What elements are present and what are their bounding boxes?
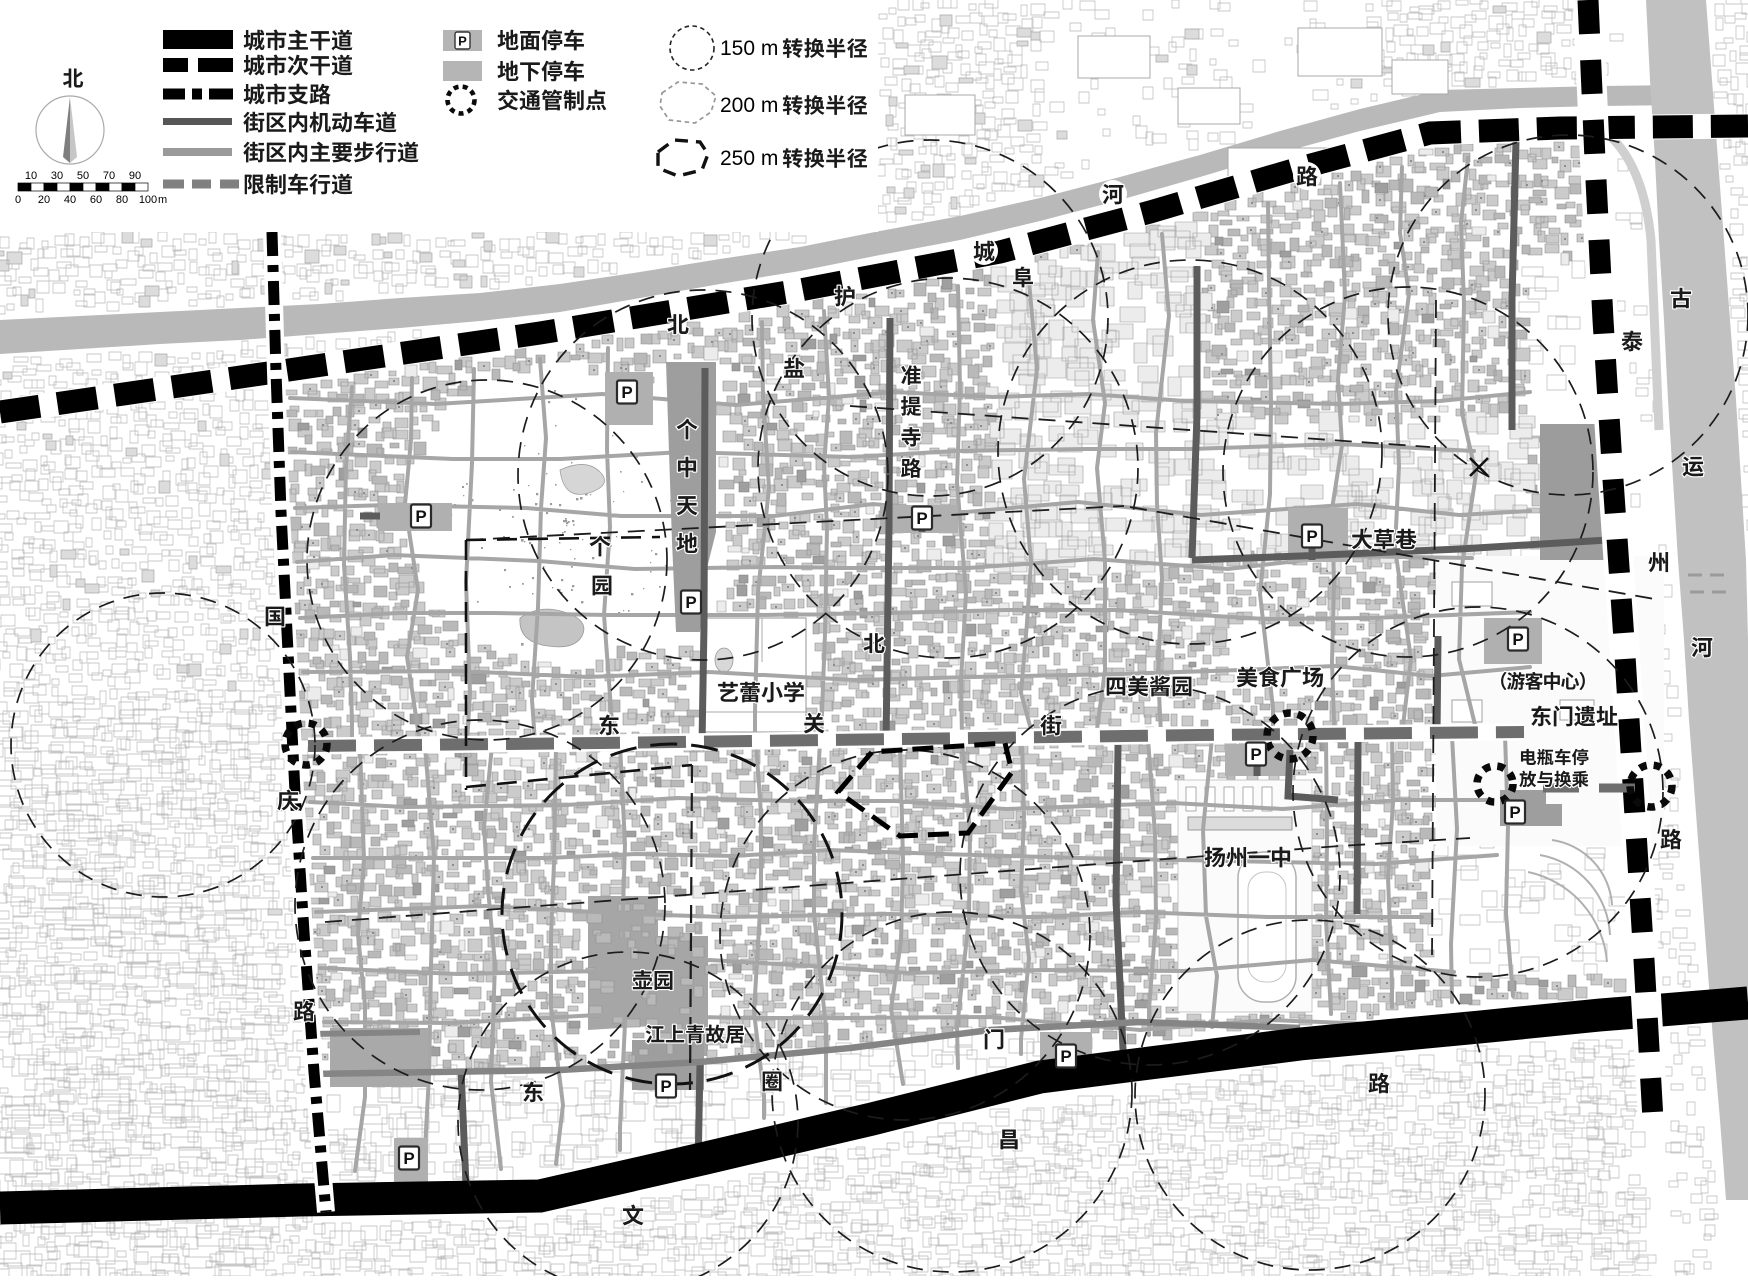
svg-text:P: P <box>660 1077 671 1096</box>
svg-text:20: 20 <box>38 194 50 206</box>
svg-text:90: 90 <box>129 170 141 182</box>
svg-text:P: P <box>1509 803 1520 822</box>
svg-text:100: 100 <box>139 194 157 206</box>
svg-text:0: 0 <box>15 194 21 206</box>
svg-text:50: 50 <box>77 170 89 182</box>
svg-text:P: P <box>621 383 632 402</box>
svg-text:P: P <box>1250 745 1261 764</box>
svg-text:200 m: 200 m <box>720 94 778 117</box>
svg-text:10: 10 <box>25 170 37 182</box>
svg-text:P: P <box>1060 1047 1071 1066</box>
svg-text:60: 60 <box>90 194 102 206</box>
svg-text:40: 40 <box>64 194 76 206</box>
svg-text:P: P <box>403 1149 414 1168</box>
svg-text:P: P <box>458 34 467 49</box>
svg-text:P: P <box>916 509 927 528</box>
svg-text:m: m <box>158 194 167 206</box>
svg-text:70: 70 <box>103 170 115 182</box>
svg-text:30: 30 <box>51 170 63 182</box>
svg-text:P: P <box>1306 527 1317 546</box>
svg-text:150 m: 150 m <box>720 37 778 60</box>
svg-text:250 m: 250 m <box>720 147 778 170</box>
svg-text:P: P <box>415 507 426 526</box>
svg-text:P: P <box>1512 630 1523 649</box>
svg-text:P: P <box>685 593 696 612</box>
svg-text:80: 80 <box>116 194 128 206</box>
